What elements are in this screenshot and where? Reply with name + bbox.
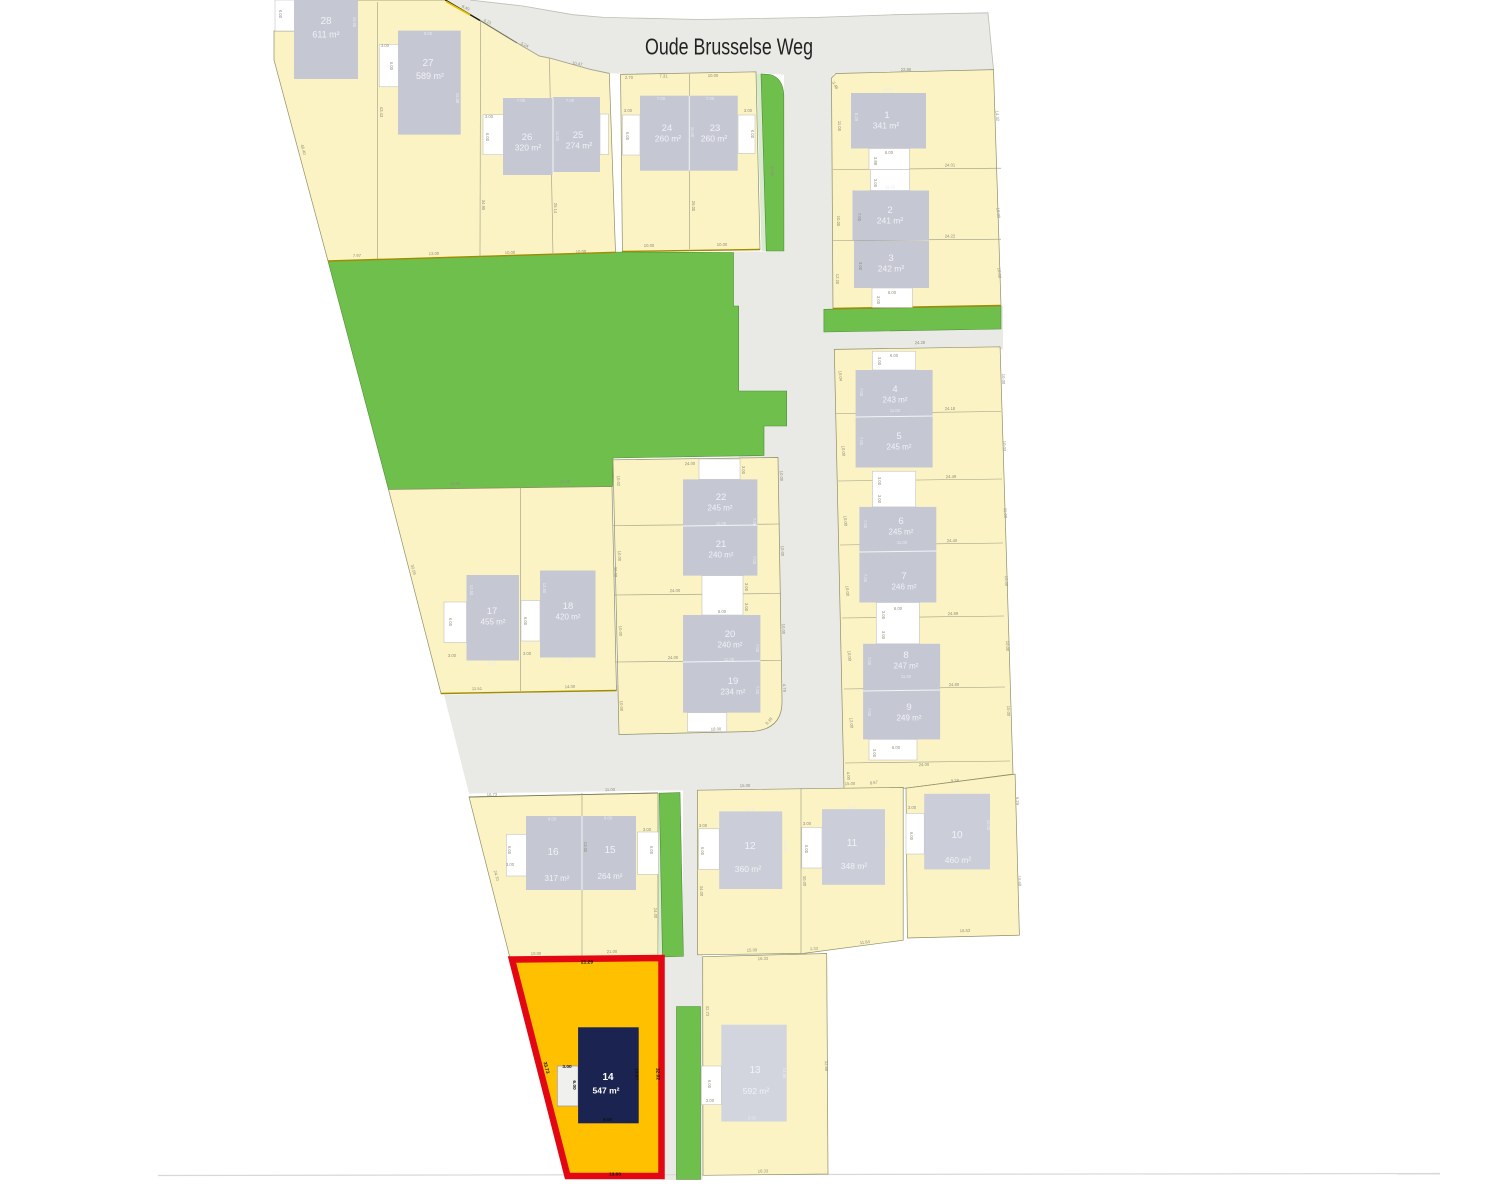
- svg-text:24.18: 24.18: [945, 406, 956, 411]
- svg-text:3.00: 3.00: [803, 821, 812, 826]
- svg-text:26.00: 26.00: [691, 201, 696, 212]
- svg-text:8.00: 8.00: [563, 658, 572, 663]
- svg-text:24.00: 24.00: [919, 762, 930, 767]
- svg-text:32.02: 32.02: [654, 1068, 660, 1081]
- svg-text:2.70: 2.70: [625, 75, 634, 80]
- svg-text:317 m²: 317 m²: [545, 874, 570, 883]
- svg-text:11.00: 11.00: [901, 674, 912, 679]
- svg-text:7.00: 7.00: [517, 98, 526, 103]
- svg-text:10.00: 10.00: [780, 546, 786, 557]
- svg-text:249 m²: 249 m²: [897, 714, 922, 723]
- svg-text:245 m²: 245 m²: [708, 504, 733, 513]
- svg-text:11.00: 11.00: [837, 121, 842, 132]
- svg-text:8.00: 8.00: [488, 661, 497, 666]
- svg-text:10.00: 10.00: [843, 515, 849, 527]
- svg-text:34.00: 34.00: [699, 886, 704, 897]
- svg-text:10.02: 10.02: [616, 476, 622, 487]
- svg-text:3: 3: [888, 253, 893, 264]
- svg-text:27: 27: [422, 58, 434, 69]
- svg-text:10.00: 10.00: [996, 207, 1002, 219]
- svg-text:6.00: 6.00: [894, 606, 903, 611]
- svg-text:260 m²: 260 m²: [655, 134, 682, 144]
- svg-text:26: 26: [522, 132, 533, 143]
- svg-text:11.00: 11.00: [555, 131, 560, 142]
- svg-text:32.66: 32.66: [824, 1061, 829, 1072]
- svg-text:7.00: 7.00: [863, 520, 868, 529]
- svg-text:8.29: 8.29: [854, 113, 859, 122]
- svg-text:9: 9: [906, 702, 911, 713]
- svg-text:10.00: 10.00: [1006, 706, 1011, 717]
- svg-text:274 m²: 274 m²: [566, 141, 593, 151]
- svg-text:11.00: 11.00: [885, 838, 890, 849]
- svg-text:10.00: 10.00: [617, 551, 623, 562]
- svg-text:3.00: 3.00: [448, 653, 457, 658]
- svg-text:14.32: 14.32: [995, 110, 1001, 122]
- svg-text:7.00: 7.00: [706, 96, 715, 101]
- svg-text:11.00: 11.00: [783, 841, 788, 852]
- svg-text:6.00: 6.00: [890, 353, 899, 358]
- svg-text:7.00: 7.00: [752, 518, 757, 527]
- svg-text:240 m²: 240 m²: [718, 641, 743, 650]
- svg-text:360 m²: 360 m²: [735, 864, 762, 874]
- svg-text:420 m²: 420 m²: [556, 613, 581, 622]
- svg-text:8: 8: [903, 650, 908, 661]
- svg-text:14.00: 14.00: [560, 479, 571, 484]
- svg-text:3.00: 3.00: [699, 823, 708, 828]
- svg-text:11.00: 11.00: [885, 185, 896, 190]
- svg-text:9.00: 9.00: [746, 807, 755, 812]
- svg-text:7.00: 7.00: [863, 574, 868, 583]
- svg-text:10.00: 10.00: [1004, 576, 1009, 587]
- svg-text:10.00: 10.00: [708, 73, 719, 78]
- svg-text:9.29: 9.29: [1015, 797, 1021, 806]
- svg-text:11.00: 11.00: [716, 521, 727, 526]
- svg-text:24.00: 24.00: [685, 461, 696, 466]
- svg-text:3.00: 3.00: [744, 108, 753, 113]
- svg-text:13.00: 13.00: [429, 251, 440, 256]
- svg-text:3.00: 3.00: [506, 862, 515, 867]
- svg-text:460 m²: 460 m²: [945, 855, 972, 865]
- svg-text:24.01: 24.01: [945, 162, 956, 167]
- svg-text:240 m²: 240 m²: [709, 551, 734, 560]
- svg-text:10.00: 10.00: [644, 243, 655, 248]
- svg-text:3.00: 3.00: [877, 357, 882, 366]
- svg-text:3.00: 3.00: [876, 296, 881, 305]
- svg-text:6.00: 6.00: [707, 1080, 712, 1089]
- svg-text:16.33: 16.33: [758, 956, 769, 961]
- svg-text:7.00: 7.00: [755, 686, 760, 695]
- svg-text:24: 24: [662, 123, 673, 134]
- svg-text:21.29: 21.29: [581, 959, 593, 965]
- svg-text:2: 2: [887, 205, 892, 216]
- svg-text:245 m²: 245 m²: [887, 443, 912, 452]
- svg-text:3.00: 3.00: [624, 108, 633, 113]
- svg-text:34.95: 34.95: [481, 200, 486, 211]
- svg-text:6.00: 6.00: [448, 618, 453, 627]
- svg-text:16.53: 16.53: [960, 928, 971, 933]
- svg-text:4.79: 4.79: [782, 684, 787, 693]
- svg-text:611 m²: 611 m²: [312, 30, 339, 40]
- svg-text:3.00: 3.00: [877, 495, 882, 504]
- svg-text:242 m²: 242 m²: [878, 264, 905, 274]
- svg-text:9.28: 9.28: [953, 788, 962, 793]
- svg-text:245 m²: 245 m²: [889, 528, 914, 537]
- svg-text:11.00: 11.00: [986, 820, 991, 831]
- svg-text:12.50: 12.50: [542, 583, 547, 594]
- svg-text:43.43: 43.43: [379, 107, 384, 118]
- svg-text:15.00: 15.00: [740, 783, 751, 788]
- svg-text:25.14: 25.14: [553, 203, 558, 214]
- svg-text:11.00: 11.00: [724, 657, 735, 662]
- svg-text:3.00: 3.00: [643, 827, 652, 832]
- svg-text:12.20: 12.20: [835, 274, 840, 285]
- svg-text:11.00: 11.00: [1003, 508, 1008, 519]
- svg-text:10.00: 10.00: [781, 624, 787, 635]
- svg-text:234 m²: 234 m²: [721, 688, 746, 697]
- svg-text:7.00: 7.00: [755, 644, 760, 653]
- svg-text:24.40: 24.40: [947, 538, 958, 543]
- svg-text:6.00: 6.00: [804, 845, 809, 854]
- svg-text:10: 10: [951, 830, 963, 841]
- svg-text:260 m²: 260 m²: [701, 134, 728, 144]
- svg-text:3.00: 3.00: [562, 1064, 572, 1070]
- svg-text:7.00: 7.00: [867, 657, 872, 666]
- svg-text:19: 19: [728, 676, 739, 687]
- svg-text:7: 7: [901, 571, 906, 582]
- svg-text:15.88: 15.88: [455, 93, 460, 104]
- svg-text:7.00: 7.00: [859, 388, 864, 397]
- svg-text:14: 14: [602, 1072, 614, 1083]
- svg-text:16: 16: [547, 847, 559, 858]
- svg-text:10.00: 10.00: [836, 216, 841, 227]
- svg-text:3.00: 3.00: [877, 477, 882, 486]
- svg-text:6.00: 6.00: [507, 846, 512, 855]
- svg-text:24.00: 24.00: [670, 588, 681, 593]
- svg-text:6.00: 6.00: [700, 847, 705, 856]
- svg-text:10.04: 10.04: [838, 370, 844, 382]
- svg-text:18.82: 18.82: [450, 481, 461, 486]
- svg-text:8.00: 8.00: [548, 817, 557, 822]
- svg-text:6.00: 6.00: [625, 132, 630, 141]
- svg-text:6.00: 6.00: [649, 846, 654, 855]
- svg-text:1.33: 1.33: [810, 946, 819, 951]
- svg-text:16.60: 16.60: [1017, 875, 1023, 887]
- svg-text:22.86: 22.86: [901, 67, 912, 72]
- svg-text:12.50: 12.50: [469, 585, 474, 596]
- svg-text:1: 1: [884, 110, 889, 121]
- svg-text:18: 18: [563, 601, 574, 612]
- svg-text:13: 13: [749, 1065, 761, 1076]
- svg-text:24.49: 24.49: [946, 474, 957, 479]
- svg-text:10.00: 10.00: [531, 951, 542, 956]
- svg-text:15.00: 15.00: [845, 781, 856, 786]
- svg-text:14.58: 14.58: [782, 1068, 787, 1079]
- svg-text:12.00: 12.00: [849, 717, 855, 729]
- svg-text:3.00: 3.00: [881, 611, 886, 620]
- svg-text:15.00: 15.00: [352, 17, 357, 28]
- svg-text:12: 12: [744, 841, 756, 852]
- svg-text:11.00: 11.00: [897, 540, 908, 545]
- svg-text:11.00: 11.00: [890, 408, 901, 413]
- svg-text:589 m²: 589 m²: [416, 71, 444, 81]
- svg-text:Oude Brusselse Weg: Oude Brusselse Weg: [645, 34, 813, 60]
- svg-text:6.00: 6.00: [909, 832, 914, 841]
- svg-text:7.31: 7.31: [659, 74, 668, 79]
- svg-text:3.00: 3.00: [908, 805, 917, 810]
- svg-text:10.03: 10.03: [1002, 441, 1007, 452]
- svg-text:24.80: 24.80: [949, 682, 960, 687]
- svg-text:24.00: 24.00: [668, 655, 679, 660]
- svg-text:6.00: 6.00: [885, 150, 894, 155]
- svg-text:10.00: 10.00: [997, 267, 1003, 279]
- svg-text:13.97: 13.97: [634, 1068, 640, 1080]
- svg-text:16.33: 16.33: [758, 1168, 769, 1173]
- svg-text:592 m²: 592 m²: [743, 1086, 770, 1096]
- svg-text:6.00: 6.00: [485, 133, 490, 142]
- svg-text:11.00: 11.00: [605, 787, 616, 792]
- svg-text:3.00: 3.00: [744, 583, 749, 592]
- svg-text:6.00: 6.00: [892, 745, 901, 750]
- svg-text:10.00: 10.00: [619, 701, 625, 712]
- svg-text:6.00: 6.00: [278, 10, 283, 19]
- svg-text:341 m²: 341 m²: [873, 121, 900, 131]
- svg-text:7.00: 7.00: [566, 98, 575, 103]
- svg-text:10.00: 10.00: [845, 585, 851, 597]
- svg-text:16.73: 16.73: [487, 792, 498, 797]
- svg-text:7.97: 7.97: [353, 253, 362, 258]
- svg-text:3.00: 3.00: [706, 1098, 715, 1103]
- svg-text:3.00: 3.00: [741, 466, 746, 475]
- svg-text:13.00: 13.00: [609, 1172, 621, 1178]
- svg-text:18.00: 18.00: [711, 726, 722, 731]
- svg-text:17: 17: [487, 606, 498, 617]
- svg-text:21: 21: [716, 539, 727, 550]
- svg-text:3.00: 3.00: [881, 631, 886, 640]
- svg-text:23: 23: [710, 123, 721, 134]
- svg-text:9.28: 9.28: [951, 778, 960, 784]
- svg-text:8.00: 8.00: [604, 816, 613, 821]
- svg-text:7.00: 7.00: [867, 708, 872, 717]
- svg-text:6.00: 6.00: [750, 130, 755, 139]
- svg-text:11.51: 11.51: [472, 686, 483, 691]
- svg-text:4.00: 4.00: [846, 772, 852, 781]
- svg-text:7.00: 7.00: [752, 556, 757, 565]
- svg-text:9.00: 9.00: [848, 805, 857, 810]
- svg-text:6: 6: [898, 516, 903, 527]
- svg-text:11: 11: [847, 838, 858, 849]
- svg-text:264 m²: 264 m²: [598, 872, 623, 881]
- svg-text:241 m²: 241 m²: [877, 216, 904, 226]
- svg-text:10.80: 10.80: [883, 87, 894, 92]
- svg-text:24.22: 24.22: [945, 233, 956, 238]
- svg-text:3.00: 3.00: [873, 179, 878, 188]
- svg-text:547 m²: 547 m²: [593, 1086, 620, 1096]
- svg-text:243 m²: 243 m²: [883, 396, 908, 405]
- svg-text:3.00: 3.00: [523, 651, 532, 656]
- svg-text:9.50: 9.50: [748, 1116, 757, 1121]
- svg-text:7.00: 7.00: [859, 437, 864, 446]
- svg-text:6.00: 6.00: [523, 617, 528, 626]
- svg-text:320 m²: 320 m²: [515, 143, 542, 153]
- svg-text:22: 22: [716, 492, 727, 503]
- svg-text:30.00: 30.00: [613, 567, 618, 578]
- svg-text:10.00: 10.00: [1005, 641, 1010, 652]
- svg-text:5: 5: [896, 431, 901, 442]
- svg-text:10.00: 10.00: [1001, 374, 1006, 385]
- svg-text:28: 28: [320, 16, 332, 27]
- svg-text:6.00: 6.00: [718, 609, 727, 614]
- svg-text:24.00: 24.00: [653, 908, 658, 919]
- svg-text:24.28: 24.28: [915, 340, 926, 345]
- svg-text:13.00: 13.00: [583, 842, 588, 853]
- svg-text:6.00: 6.00: [389, 62, 394, 71]
- svg-text:348 m²: 348 m²: [841, 861, 868, 871]
- svg-text:10.00: 10.00: [779, 471, 785, 482]
- svg-text:15: 15: [604, 845, 616, 856]
- svg-text:24.69: 24.69: [948, 611, 959, 616]
- svg-text:7.00: 7.00: [857, 213, 862, 222]
- svg-text:14.00: 14.00: [565, 684, 576, 689]
- svg-text:24.00: 24.00: [770, 166, 775, 177]
- svg-text:3.88: 3.88: [873, 157, 878, 166]
- svg-text:30.00: 30.00: [802, 876, 807, 887]
- svg-text:455 m²: 455 m²: [481, 618, 506, 627]
- svg-text:3.00: 3.00: [381, 43, 390, 48]
- svg-text:3.00: 3.00: [872, 749, 877, 758]
- svg-text:10.00: 10.00: [841, 445, 847, 457]
- svg-text:10.00: 10.00: [847, 650, 853, 662]
- svg-text:9.00: 9.00: [603, 1117, 613, 1123]
- svg-text:10.00: 10.00: [505, 250, 516, 255]
- svg-text:21.00: 21.00: [607, 949, 618, 954]
- svg-text:9.00: 9.00: [424, 31, 433, 36]
- svg-text:4: 4: [892, 384, 897, 395]
- svg-text:25: 25: [573, 130, 584, 141]
- svg-text:20: 20: [725, 629, 736, 640]
- svg-text:247 m²: 247 m²: [894, 662, 919, 671]
- svg-text:3.00: 3.00: [485, 114, 494, 119]
- svg-text:15.00: 15.00: [747, 947, 758, 952]
- svg-text:7.00: 7.00: [657, 96, 666, 101]
- svg-text:3.00: 3.00: [858, 262, 863, 271]
- svg-text:6.00: 6.00: [571, 1080, 577, 1090]
- svg-text:32.73: 32.73: [705, 1006, 710, 1017]
- svg-text:11.00: 11.00: [690, 127, 695, 138]
- svg-text:246 m²: 246 m²: [892, 583, 917, 592]
- svg-text:10.00: 10.00: [618, 626, 624, 637]
- svg-text:6.00: 6.00: [888, 290, 897, 295]
- svg-text:3.00: 3.00: [744, 603, 749, 612]
- svg-text:10.00: 10.00: [717, 242, 728, 247]
- svg-text:10.00: 10.00: [576, 249, 587, 254]
